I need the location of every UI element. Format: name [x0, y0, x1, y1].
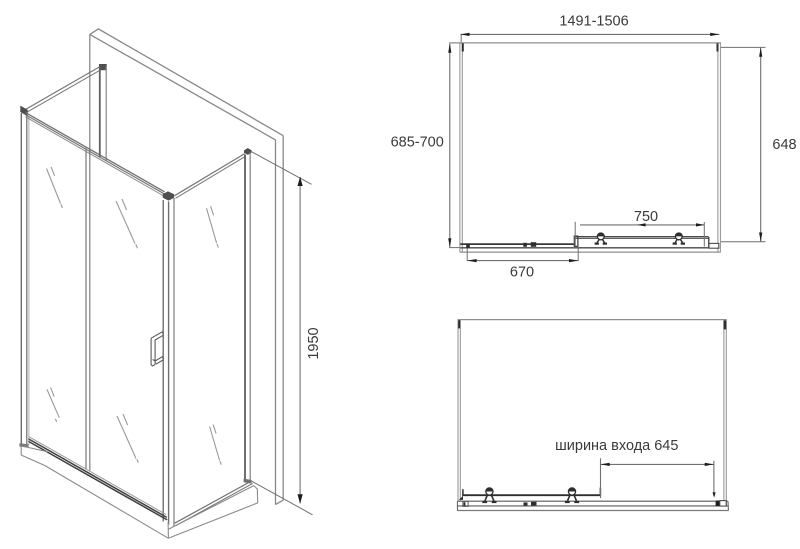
svg-text:685-700: 685-700 — [391, 135, 444, 151]
svg-text:1950: 1950 — [306, 327, 322, 359]
svg-text:648: 648 — [772, 137, 796, 153]
svg-text:670: 670 — [510, 264, 534, 280]
svg-text:1491-1506: 1491-1506 — [559, 13, 628, 29]
svg-text:ширина входа 645: ширина входа 645 — [555, 438, 678, 454]
svg-text:750: 750 — [634, 209, 658, 225]
